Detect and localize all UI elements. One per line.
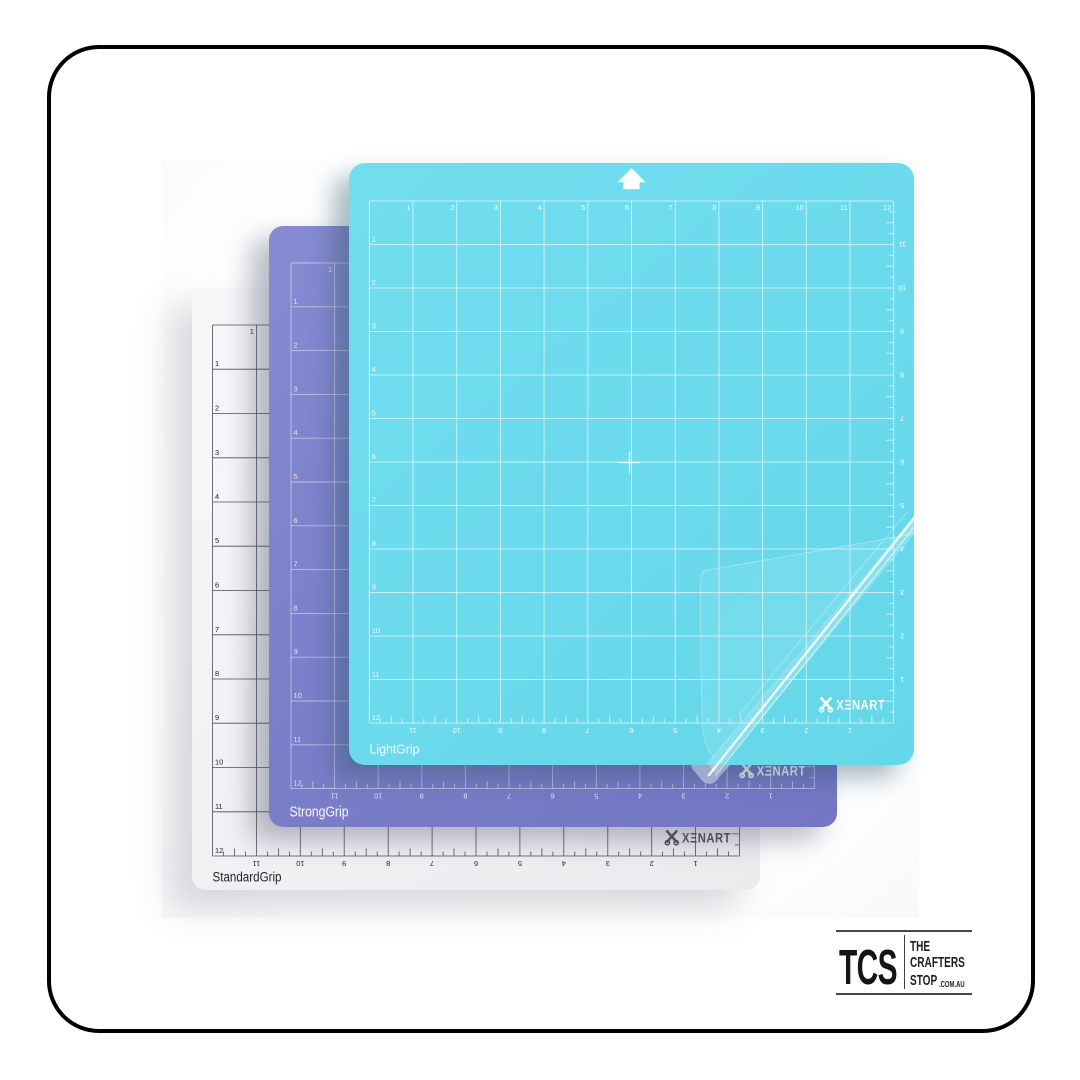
svg-text:6: 6	[625, 203, 629, 212]
svg-text:XΞNART: XΞNART	[757, 763, 806, 778]
svg-text:8: 8	[215, 669, 219, 678]
svg-text:2: 2	[372, 278, 376, 287]
svg-text:11: 11	[898, 240, 906, 249]
svg-text:10: 10	[372, 626, 380, 635]
svg-text:6: 6	[372, 452, 376, 461]
svg-text:7: 7	[669, 203, 673, 212]
svg-text:4: 4	[215, 492, 219, 501]
svg-text:9: 9	[498, 726, 502, 735]
svg-text:7: 7	[900, 414, 904, 423]
svg-text:8: 8	[386, 859, 390, 868]
svg-text:10: 10	[453, 726, 461, 735]
svg-text:XΞNART: XΞNART	[836, 698, 885, 713]
svg-text:5: 5	[294, 472, 298, 481]
svg-text:12: 12	[372, 713, 380, 722]
svg-text:2: 2	[804, 726, 808, 735]
svg-text:6: 6	[900, 457, 904, 466]
svg-text:7: 7	[215, 625, 219, 634]
svg-text:6: 6	[215, 581, 219, 590]
svg-text:2: 2	[450, 203, 454, 212]
svg-text:StrongGrip: StrongGrip	[290, 804, 349, 821]
svg-text:9: 9	[294, 647, 298, 656]
svg-text:9: 9	[342, 859, 346, 868]
svg-text:9: 9	[756, 203, 760, 212]
svg-text:1: 1	[900, 675, 904, 684]
svg-text:3: 3	[372, 322, 376, 331]
svg-text:8: 8	[712, 203, 716, 212]
svg-text:8: 8	[294, 603, 298, 612]
svg-text:5: 5	[215, 536, 219, 545]
svg-text:3: 3	[294, 384, 298, 393]
svg-text:1: 1	[694, 859, 698, 868]
svg-text:3: 3	[761, 726, 765, 735]
svg-text:2: 2	[294, 341, 298, 350]
svg-text:10: 10	[296, 859, 304, 868]
svg-text:3: 3	[494, 203, 498, 212]
svg-text:5: 5	[673, 726, 677, 735]
svg-text:1: 1	[328, 265, 332, 274]
svg-text:2: 2	[215, 404, 219, 413]
svg-text:7: 7	[586, 726, 590, 735]
svg-text:1: 1	[848, 726, 852, 735]
svg-text:8: 8	[372, 539, 376, 548]
svg-text:1: 1	[769, 791, 773, 800]
svg-text:10: 10	[796, 203, 804, 212]
svg-text:7: 7	[372, 496, 376, 505]
svg-text:11: 11	[372, 670, 380, 679]
svg-text:9: 9	[900, 327, 904, 336]
svg-text:8: 8	[900, 370, 904, 379]
svg-text:12: 12	[294, 779, 302, 788]
svg-text:11: 11	[840, 203, 848, 212]
svg-text:10: 10	[898, 283, 906, 292]
svg-text:3: 3	[215, 448, 219, 457]
svg-text:7: 7	[294, 560, 298, 569]
svg-text:6: 6	[294, 516, 298, 525]
svg-text:3: 3	[606, 859, 610, 868]
svg-text:9: 9	[372, 583, 376, 592]
svg-text:3: 3	[681, 791, 685, 800]
svg-text:6: 6	[474, 859, 478, 868]
svg-text:6: 6	[629, 726, 633, 735]
svg-text:XΞNART: XΞNART	[682, 831, 731, 846]
svg-text:4: 4	[537, 203, 541, 212]
svg-text:LightGrip: LightGrip	[370, 742, 420, 757]
svg-text:11: 11	[215, 802, 223, 811]
svg-text:5: 5	[372, 409, 376, 418]
svg-text:12: 12	[215, 846, 223, 855]
svg-text:1: 1	[294, 297, 298, 306]
svg-text:8: 8	[463, 791, 467, 800]
svg-text:6: 6	[551, 791, 555, 800]
svg-text:4: 4	[562, 859, 566, 868]
svg-text:3: 3	[900, 588, 904, 597]
svg-text:11: 11	[294, 735, 302, 744]
svg-text:5: 5	[900, 501, 904, 510]
svg-text:11: 11	[253, 859, 261, 868]
svg-text:7: 7	[507, 791, 511, 800]
svg-text:11: 11	[331, 791, 339, 800]
svg-text:2: 2	[900, 631, 904, 640]
svg-text:StandardGrip: StandardGrip	[213, 870, 282, 885]
svg-text:5: 5	[594, 791, 598, 800]
svg-text:4: 4	[294, 428, 298, 437]
svg-text:10: 10	[294, 691, 302, 700]
svg-text:11: 11	[409, 726, 417, 735]
svg-text:9: 9	[215, 713, 219, 722]
svg-text:1: 1	[215, 359, 219, 368]
svg-text:1: 1	[250, 327, 254, 336]
svg-text:2: 2	[725, 791, 729, 800]
svg-text:10: 10	[215, 758, 223, 767]
svg-text:5: 5	[581, 203, 585, 212]
svg-text:2: 2	[650, 859, 654, 868]
svg-text:12: 12	[883, 203, 891, 212]
svg-text:1: 1	[406, 203, 410, 212]
svg-text:7: 7	[430, 859, 434, 868]
svg-text:4: 4	[372, 365, 376, 374]
svg-text:10: 10	[374, 791, 382, 800]
svg-text:5: 5	[518, 859, 522, 868]
svg-text:9: 9	[420, 791, 424, 800]
svg-text:4: 4	[638, 791, 642, 800]
svg-text:8: 8	[542, 726, 546, 735]
svg-text:1: 1	[372, 235, 376, 244]
